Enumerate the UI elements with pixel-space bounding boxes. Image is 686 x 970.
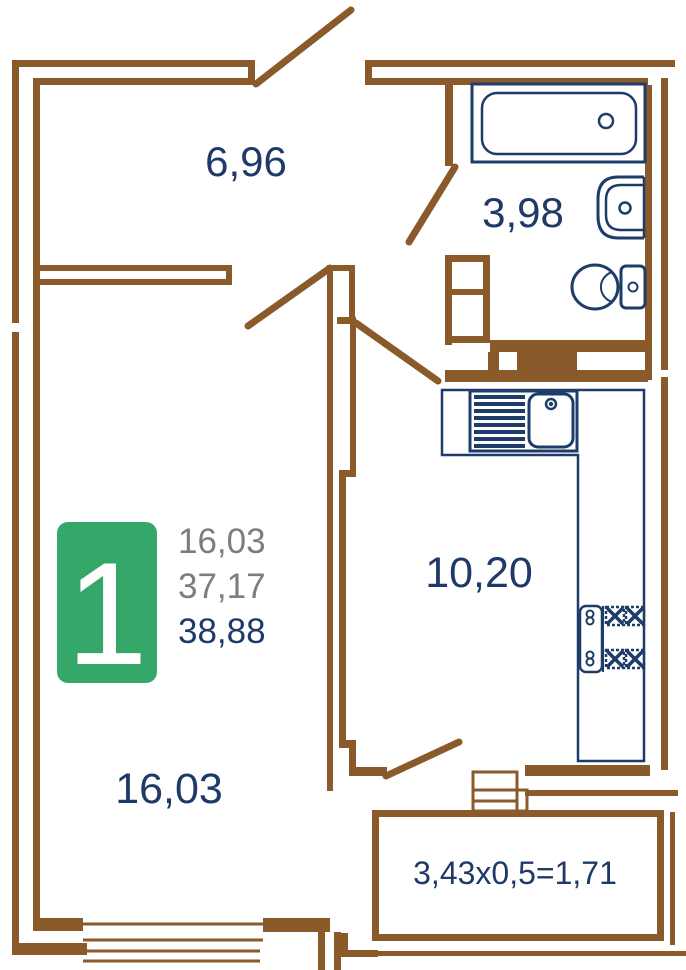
area-stats: 16,03 37,17 38,88 — [178, 522, 266, 651]
balcony-dimensions-label: 3,43x0,5=1,71 — [413, 855, 617, 891]
living-room-door-leaf — [248, 268, 330, 326]
rooms-count-number: 1 — [66, 532, 147, 695]
fixture-washbasin — [598, 177, 644, 238]
fixture-kitchen-sink — [470, 391, 577, 451]
floor-plan-canvas: 6,96 3,98 10,20 16,03 3,43x0,5=1,71 1 16… — [0, 0, 686, 970]
stat-total-area: 38,88 — [178, 612, 266, 651]
floor-plan: 6,96 3,98 10,20 16,03 3,43x0,5=1,71 1 16… — [0, 0, 686, 970]
walls-layer — [12, 60, 686, 970]
room-label-hallway: 6,96 — [205, 138, 287, 185]
room-label-bathroom: 3,98 — [482, 189, 564, 236]
kitchen-door-leaf — [356, 323, 438, 381]
balcony-window — [473, 772, 527, 811]
room-label-living-room: 16,03 — [115, 765, 223, 813]
fixture-toilet — [572, 265, 645, 309]
fixture-stove — [580, 606, 644, 672]
bathroom-door-leaf — [409, 167, 455, 242]
balcony-door-leaf — [386, 742, 459, 776]
stat-area-no-balcony: 37,17 — [178, 567, 266, 606]
fixture-bathtub — [472, 84, 645, 162]
unit-badge: 1 — [57, 522, 157, 695]
stat-living-area: 16,03 — [178, 522, 266, 561]
room-label-kitchen: 10,20 — [425, 549, 533, 597]
entry-door-leaf — [256, 10, 351, 84]
